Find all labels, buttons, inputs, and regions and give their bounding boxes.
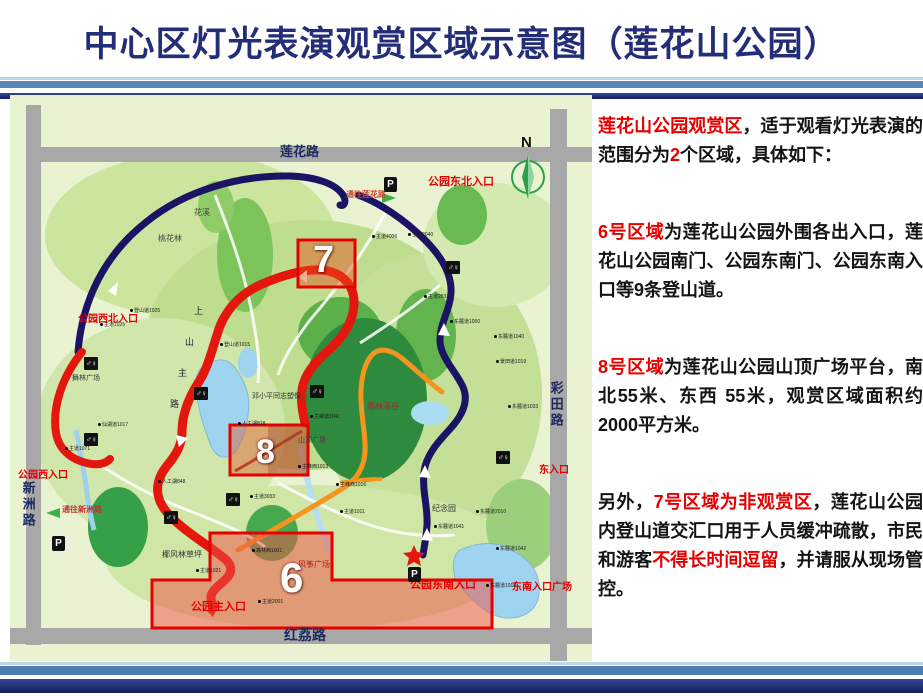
map-label: 彩田路 xyxy=(549,381,563,429)
marker-dot xyxy=(486,584,489,587)
highlight-text: 不得长时间逗留 xyxy=(652,550,778,570)
trail-marker: 主道4006 xyxy=(372,235,397,240)
marker-dot xyxy=(372,235,375,238)
map-label: 上 xyxy=(194,307,203,316)
trail-marker: 主道1071 xyxy=(65,447,90,452)
trail-marker: 人工湖848 xyxy=(158,480,185,485)
trail-marker: 主道2833 xyxy=(424,295,449,300)
park-map: 莲花路红荔路彩田路新洲路N公园东北入口通往莲花路公园西北入口公园西入口通往新洲路… xyxy=(10,95,592,661)
map-label: 公园东北入口 xyxy=(428,177,494,189)
header-rule-blue xyxy=(0,81,923,88)
parking-icon: P xyxy=(384,177,397,192)
map-label: 红荔路 xyxy=(284,628,326,643)
marker-dot xyxy=(238,422,241,425)
marker-dot xyxy=(508,405,511,408)
region-6-label: 6 xyxy=(280,557,303,599)
footer-rule-light xyxy=(0,662,923,665)
map-label: 雨林溪谷 xyxy=(367,403,399,411)
trail-marker: 东麓道1042 xyxy=(496,547,526,552)
map-label: 新洲路 xyxy=(21,481,35,529)
marker-dot xyxy=(100,323,103,326)
map-label: 花溪 xyxy=(194,209,210,217)
map-label: N xyxy=(521,135,532,151)
footer-rule-blue xyxy=(0,666,923,675)
map-label: 椰风林草坪 xyxy=(162,551,202,559)
map-label: 公园西入口 xyxy=(18,471,68,482)
trail-marker: 东麓道1050 xyxy=(450,320,480,325)
map-label: 东入口 xyxy=(539,466,569,477)
map-label: 邓小平同志塑像 xyxy=(252,393,301,400)
marker-dot xyxy=(424,295,427,298)
description-paragraph-2: 6号区域为莲花山公园外围各出入口，莲花山公园南门、公园东南门、公园东南入口等9条… xyxy=(598,218,923,305)
trail-marker: 主道2040 xyxy=(408,233,433,238)
lake-shape xyxy=(238,348,258,378)
map-label: 主 xyxy=(178,369,187,378)
marker-dot xyxy=(252,549,255,552)
restroom-icon: ♂♀ xyxy=(496,451,510,464)
marker-dot xyxy=(98,423,101,426)
slide: 中心区灯光表演观赏区域示意图（莲花山公园） xyxy=(0,0,923,699)
road-xinzhou xyxy=(26,105,41,645)
trail-marker: 人工湖818 xyxy=(238,422,265,427)
marker-dot xyxy=(496,547,499,550)
highlight-text: 6号区域 xyxy=(598,222,664,242)
marker-dot xyxy=(158,480,161,483)
description-panel: 莲花山公园观赏区，适于观看灯光表演的范围分为2个区域，具体如下：6号区域为莲花山… xyxy=(598,112,923,604)
trail-marker: 主道3033 xyxy=(250,495,275,500)
forest-shape xyxy=(88,487,148,567)
map-label: 山顶广场 xyxy=(298,437,326,444)
marker-dot xyxy=(336,483,339,486)
body-text: 个区域，具体如下： xyxy=(680,145,842,165)
map-label: 桃花林 xyxy=(158,235,182,243)
description-paragraph-1: 莲花山公园观赏区，适于观看灯光表演的范围分为2个区域，具体如下： xyxy=(598,112,923,170)
header-rule-light xyxy=(0,77,923,80)
trail-marker: 东麓道1033 xyxy=(508,405,538,410)
trail-marker: 主峰西1016 xyxy=(336,483,366,488)
marker-dot xyxy=(494,335,497,338)
highlight-text: 8号区域 xyxy=(598,357,664,377)
trail-marker: 东麓道1018 xyxy=(486,584,516,589)
trail-marker: 东麓道1040 xyxy=(494,335,524,340)
marker-dot xyxy=(340,510,343,513)
trail-marker: 东麓道2010 xyxy=(476,510,506,515)
restroom-icon: ♂♀ xyxy=(84,357,98,370)
marker-dot xyxy=(408,233,411,236)
trail-marker: 东麓道1041 xyxy=(434,525,464,530)
map-label: 舞林广场 xyxy=(72,375,100,382)
restroom-icon: ♂♀ xyxy=(194,387,208,400)
marker-dot xyxy=(434,525,437,528)
region-8-label: 8 xyxy=(256,435,275,469)
parking-icon: P xyxy=(52,536,65,551)
body-text: 另外， xyxy=(598,492,654,512)
trail-marker: 主峰道1041 xyxy=(310,415,340,420)
marker-dot xyxy=(310,415,313,418)
map-label: 路 xyxy=(170,400,179,409)
map-label: 通往莲花路 xyxy=(346,191,386,199)
map-label: 纪念园 xyxy=(432,505,456,513)
highlight-text: 7号区域为非观赏区 xyxy=(654,492,813,512)
restroom-icon: ♂♀ xyxy=(446,261,460,274)
footer-rule-navy xyxy=(0,679,923,693)
description-paragraph-4: 另外，7号区域为非观赏区，莲花山公园内登山道交汇口用于人员缓冲疏散，市民和游客不… xyxy=(598,488,923,604)
map-label: 通往新洲路 xyxy=(62,506,102,514)
restroom-icon: ♂♀ xyxy=(84,433,98,446)
trail-marker: 主道1025 xyxy=(100,323,125,328)
marker-dot xyxy=(496,360,499,363)
marker-dot xyxy=(130,309,133,312)
marker-dot xyxy=(65,447,68,450)
highlight-text: 莲花山公园观赏区 xyxy=(598,116,742,136)
parking-icon: P xyxy=(408,567,421,582)
map-label: 莲花路 xyxy=(280,145,319,159)
marker-dot xyxy=(450,320,453,323)
trail-marker: 主峰西1013 xyxy=(298,465,328,470)
description-paragraph-3: 8号区域为莲花山公园山顶广场平台，南北55米、东西 55米，观赏区域面积约200… xyxy=(598,353,923,440)
region-7-label: 7 xyxy=(313,241,334,279)
trail-marker: 仙湖道1017 xyxy=(98,423,128,428)
page-title: 中心区灯光表演观赏区域示意图（莲花山公园） xyxy=(0,16,923,67)
marker-dot xyxy=(220,343,223,346)
map-label: 东南入口广场 xyxy=(512,583,572,594)
trail-marker: 登山道1025 xyxy=(130,309,160,314)
trail-marker: 登山道1015 xyxy=(220,343,250,348)
trail-marker: 主道1021 xyxy=(196,569,221,574)
map-label: 山 xyxy=(185,338,194,347)
pond-shape xyxy=(411,401,449,425)
marker-dot xyxy=(258,600,261,603)
marker-dot xyxy=(250,495,253,498)
trail-marker: 景田道1019 xyxy=(496,360,526,365)
trail-marker: 主道1011 xyxy=(340,510,365,515)
marker-dot xyxy=(196,569,199,572)
forest-shape xyxy=(437,185,487,245)
restroom-icon: ♂♀ xyxy=(164,511,178,524)
marker-dot xyxy=(298,465,301,468)
marker-dot xyxy=(476,510,479,513)
restroom-icon: ♂♀ xyxy=(310,385,324,398)
trail-marker: 森林西1001 xyxy=(252,549,282,554)
highlight-text: 2 xyxy=(670,145,680,165)
restroom-icon: ♂♀ xyxy=(226,493,240,506)
map-label: 公园主入口 xyxy=(191,602,246,614)
